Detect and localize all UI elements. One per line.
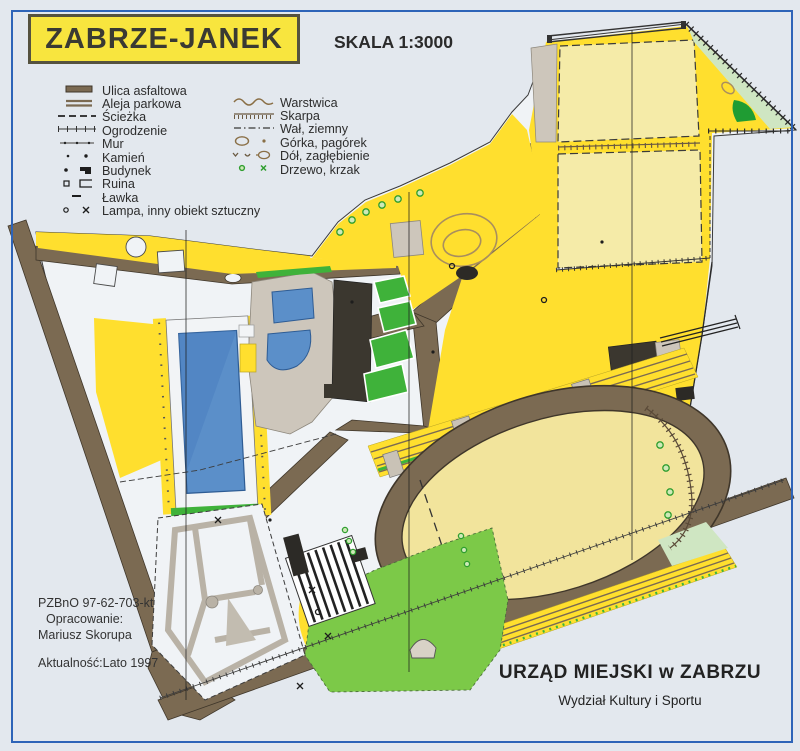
road-island xyxy=(225,274,241,283)
footer-block: URZĄD MIEJSKI w ZABRZU Wydział Kultury i… xyxy=(470,662,790,708)
park-building-gray xyxy=(390,221,423,258)
legend-item-earth-slope: Skarpa xyxy=(230,109,370,122)
legend-item-contour: Warstwica xyxy=(230,96,370,109)
legend-item-fence: Ogrodzenie xyxy=(52,124,260,137)
title-box: ZABRZE-JANEK xyxy=(28,14,300,64)
map-sheet: { "title": "ZABRZE-JANEK", "scale": "SKA… xyxy=(0,0,800,751)
park-building-dark xyxy=(456,266,478,280)
terrace-yellow-pad xyxy=(240,344,256,372)
lamp-icon xyxy=(52,204,102,219)
map-scale: SKALA 1:3000 xyxy=(334,32,453,53)
legend-item-footpath: Ścieżka xyxy=(52,111,260,124)
legend-item-wall: Mur xyxy=(52,138,260,151)
rect-pool xyxy=(272,288,314,323)
sand-square-1 xyxy=(94,264,118,287)
legend-item-building: Budynek xyxy=(52,164,260,177)
legend-item-depression: Dół, zagłębienie xyxy=(230,150,370,163)
prepared-label: Opracowanie: xyxy=(46,612,158,626)
map-title: ZABRZE-JANEK xyxy=(45,23,283,56)
legend-item-ruin: Ruina xyxy=(52,178,260,191)
legend-left-column: Ulica asfaltowa Aleja parkowa Ścieżka Og… xyxy=(52,84,260,218)
legend-item-lamp: Lampa, inny obiekt sztuczny xyxy=(52,205,260,218)
sand-square-2 xyxy=(157,250,184,273)
legend-item-stone: Kamień xyxy=(52,151,260,164)
sand-circle xyxy=(126,237,146,257)
legend-item-park-alley: Aleja parkowa xyxy=(52,97,260,110)
prepared-by: Mariusz Skorupa xyxy=(38,628,158,642)
legend-item-earth-bank: Wał, ziemny xyxy=(230,123,370,136)
small-building xyxy=(675,386,694,401)
registration-code: PZBnO 97-62-703-kt xyxy=(38,596,158,610)
field-north xyxy=(558,40,699,142)
field-south xyxy=(558,150,702,268)
gray-strip xyxy=(531,44,557,142)
legend-item-asphalt-road: Ulica asfaltowa xyxy=(52,84,260,97)
legend-item-tree-shrub: Drzewo, krzak xyxy=(230,163,370,176)
terrace-white-pad xyxy=(239,325,254,337)
topright-fields-section xyxy=(531,21,796,270)
legend-right-column: Warstwica Skarpa Wał, ziemny Górka, pagó… xyxy=(230,96,370,176)
tree-shrub-icon xyxy=(230,162,280,177)
issuing-office: URZĄD MIEJSKI w ZABRZU xyxy=(470,662,790,684)
legend-item-knoll: Górka, pagórek xyxy=(230,136,370,149)
credits-block: PZBnO 97-62-703-kt Opracowanie: Mariusz … xyxy=(38,596,158,672)
department: Wydział Kultury i Sportu xyxy=(470,693,790,708)
legend-item-bench: Ławka xyxy=(52,191,260,204)
validity: Aktualność:Lato 1997 xyxy=(38,656,158,670)
